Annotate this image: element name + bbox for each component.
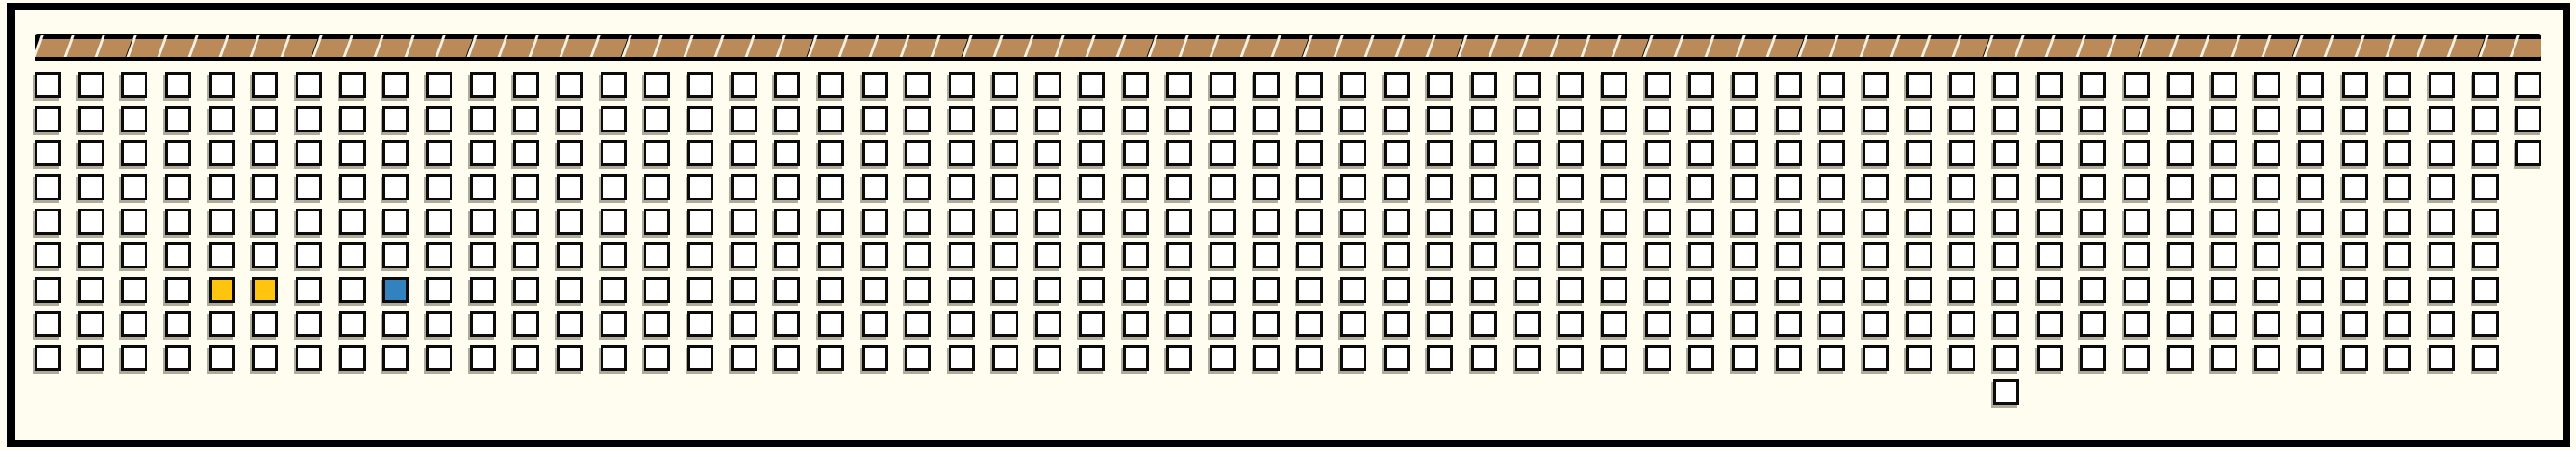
grid-cell: [818, 140, 844, 166]
agent-cell-blue: [382, 277, 409, 303]
grid-cell: [513, 209, 539, 235]
grid-cell: [949, 277, 975, 303]
grid-cell: [818, 277, 844, 303]
grid-cell: [2080, 174, 2106, 200]
grid-cell: [35, 106, 61, 132]
grid-cell: [1166, 174, 1192, 200]
grid-cell: [2167, 209, 2194, 235]
grid-cell: [2515, 106, 2541, 132]
grid-cell: [1688, 277, 1714, 303]
grid-cell: [601, 140, 627, 166]
grid-cell: [1906, 277, 1932, 303]
grid-cell: [687, 311, 713, 337]
grid-cell: [2124, 311, 2150, 337]
grid-cell: [252, 242, 278, 268]
grid-cell: [121, 242, 147, 268]
grid-cell: [1993, 140, 2019, 166]
grid-cell: [1296, 311, 1323, 337]
grid-cell: [78, 174, 104, 200]
grid-cell: [513, 311, 539, 337]
grid-cell: [1732, 72, 1758, 98]
grid-cell: [1558, 277, 1584, 303]
grid-cell: [296, 72, 322, 98]
grid-cell: [35, 72, 61, 98]
grid-cell: [1427, 72, 1453, 98]
grid-cell: [2342, 209, 2368, 235]
grid-cell: [1558, 106, 1584, 132]
grid-cell: [1819, 106, 1845, 132]
grid-cell: [1776, 209, 1802, 235]
grid-cell: [2254, 345, 2280, 371]
grid-cell: [905, 174, 931, 200]
grid-cell: [165, 209, 191, 235]
grid-cell: [1035, 174, 1061, 200]
grid-cell: [252, 72, 278, 98]
grid-cell: [1515, 174, 1541, 200]
grid-cell: [1123, 140, 1149, 166]
grid-cell: [1384, 345, 1410, 371]
grid-cell: [1253, 106, 1280, 132]
grid-cell: [1601, 242, 1627, 268]
grid-cell: [1340, 106, 1366, 132]
grid-cell: [1993, 106, 2019, 132]
grid-cell: [2472, 242, 2499, 268]
grid-cell: [2429, 345, 2455, 371]
grid-cell: [2211, 277, 2237, 303]
grid-cell: [470, 140, 496, 166]
grid-cell: [252, 209, 278, 235]
grid-cell: [1819, 345, 1845, 371]
grid-cell: [557, 209, 583, 235]
grid-cell: [774, 106, 800, 132]
grid-cell: [905, 209, 931, 235]
grid-cell: [2342, 311, 2368, 337]
grid-cell: [1210, 311, 1236, 337]
grid-cell: [1296, 140, 1323, 166]
grid-cell: [1776, 140, 1802, 166]
grid-cell: [2342, 72, 2368, 98]
grid-cell: [2472, 174, 2499, 200]
grid-cell: [2472, 140, 2499, 166]
grid-cell: [557, 277, 583, 303]
grid-cell: [1645, 209, 1671, 235]
grid-cell: [1688, 140, 1714, 166]
grid-cell: [209, 72, 235, 98]
grid-cell: [1079, 140, 1105, 166]
grid-cell: [2515, 140, 2541, 166]
grid-cell: [2080, 311, 2106, 337]
grid-cell: [339, 174, 366, 200]
grid-cell: [949, 72, 975, 98]
grid-cell: [2080, 72, 2106, 98]
grid-cell: [1471, 106, 1497, 132]
grid-cell: [1906, 311, 1932, 337]
grid-cell: [2385, 209, 2411, 235]
grid-cell: [1776, 106, 1802, 132]
grid-cell: [296, 106, 322, 132]
grid-cell: [1471, 242, 1497, 268]
grid-cell: [1123, 72, 1149, 98]
grid-cell: [992, 277, 1018, 303]
grid-cell: [1993, 209, 2019, 235]
grid-cell: [426, 140, 452, 166]
grid-cell: [905, 106, 931, 132]
grid-cell: [687, 106, 713, 132]
grid-cell: [557, 311, 583, 337]
grid-cell: [1515, 72, 1541, 98]
grid-cell: [165, 72, 191, 98]
grid-cell: [1166, 345, 1192, 371]
grid-cell: [2124, 106, 2150, 132]
grid-cell: [644, 242, 670, 268]
grid-cell: [1601, 72, 1627, 98]
grid-cell: [1906, 242, 1932, 268]
grid-cell: [1993, 311, 2019, 337]
grid-cell: [35, 174, 61, 200]
grid-cell: [2124, 72, 2150, 98]
grid-cell: [862, 345, 888, 371]
grid-cell: [818, 311, 844, 337]
grid-cell: [687, 174, 713, 200]
grid-cell: [382, 311, 409, 337]
grid-cell: [382, 72, 409, 98]
grid-cell: [2211, 345, 2237, 371]
grid-cell: [1427, 277, 1453, 303]
grid-cell: [1993, 72, 2019, 98]
grid-cell: [644, 311, 670, 337]
grid-cell: [1863, 174, 1889, 200]
grid-cell: [1776, 242, 1802, 268]
grid-cell: [2254, 106, 2280, 132]
grid-cell: [513, 106, 539, 132]
grid-cell: [1166, 209, 1192, 235]
grid-cell: [1384, 174, 1410, 200]
grid-cell: [1079, 345, 1105, 371]
grid-cell: [774, 277, 800, 303]
grid-cell: [1732, 311, 1758, 337]
grid-cell: [35, 277, 61, 303]
grid-cell: [2298, 106, 2324, 132]
grid-cell: [949, 209, 975, 235]
grid-cell: [78, 277, 104, 303]
grid-cell: [2429, 72, 2455, 98]
grid-cell: [1253, 242, 1280, 268]
grid-cell: [296, 277, 322, 303]
grid-cell: [339, 209, 366, 235]
grid-cell: [78, 140, 104, 166]
grid-cell: [731, 209, 757, 235]
grid-cell: [1123, 311, 1149, 337]
grid-cell: [121, 311, 147, 337]
grid-cell: [862, 311, 888, 337]
grid-cell: [2211, 311, 2237, 337]
grid-cell: [1645, 345, 1671, 371]
grid-cell: [2472, 106, 2499, 132]
grid-cell: [1688, 242, 1714, 268]
grid-cell: [2037, 209, 2063, 235]
grid-cell: [2080, 140, 2106, 166]
grid-cell: [2124, 209, 2150, 235]
grid-cell: [905, 140, 931, 166]
grid-cell: [731, 106, 757, 132]
grid-cell: [2037, 311, 2063, 337]
grid-cell: [1863, 106, 1889, 132]
grid-cell: [644, 106, 670, 132]
grid-cell: [165, 106, 191, 132]
grid-cell: [2037, 140, 2063, 166]
grid-cell: [1645, 140, 1671, 166]
grid-cell: [339, 140, 366, 166]
grid-cell: [1949, 311, 1975, 337]
grid-cell: [470, 209, 496, 235]
grid-cell: [1384, 106, 1410, 132]
grid-cell: [513, 277, 539, 303]
grid-cell: [644, 345, 670, 371]
grid-cell: [1123, 345, 1149, 371]
grid-cell: [2254, 242, 2280, 268]
grid-cell: [1601, 311, 1627, 337]
grid-cell: [513, 72, 539, 98]
grid-cell: [1688, 106, 1714, 132]
grid-cell: [774, 311, 800, 337]
grid-cell: [121, 277, 147, 303]
grid-cell: [2211, 174, 2237, 200]
grid-cell: [1210, 174, 1236, 200]
grid-cell: [2342, 242, 2368, 268]
grid-cell: [731, 140, 757, 166]
grid-cell: [905, 242, 931, 268]
grid-cell: [1079, 174, 1105, 200]
grid-cell: [2167, 242, 2194, 268]
grid-cell: [1123, 174, 1149, 200]
grid-cell: [731, 242, 757, 268]
grid-cell: [949, 311, 975, 337]
grid-cell: [252, 311, 278, 337]
grid-cell: [35, 242, 61, 268]
grid-cell: [1949, 72, 1975, 98]
grid-cell: [687, 345, 713, 371]
grid-cell: [1471, 209, 1497, 235]
grid-cell: [382, 209, 409, 235]
grid-cell: [1427, 345, 1453, 371]
grid-cell: [1079, 242, 1105, 268]
grid-cell: [1515, 209, 1541, 235]
grid-cell: [339, 72, 366, 98]
grid-cell: [1645, 106, 1671, 132]
grid-cell: [296, 140, 322, 166]
grid-cell: [1340, 174, 1366, 200]
grid-cell: [992, 311, 1018, 337]
grid-cell: [1079, 277, 1105, 303]
grid-cell: [296, 311, 322, 337]
grid-cell: [774, 174, 800, 200]
grid-cell: [1166, 140, 1192, 166]
grid-cell: [426, 311, 452, 337]
grid-cell: [165, 242, 191, 268]
grid-cell: [731, 277, 757, 303]
grid-cell: [818, 345, 844, 371]
grid-cell: [1340, 345, 1366, 371]
grid-cell: [1863, 277, 1889, 303]
grid-cell: [1296, 174, 1323, 200]
grid-cell: [1166, 106, 1192, 132]
grid-cell: [1340, 72, 1366, 98]
grid-cell: [2472, 209, 2499, 235]
grid-cell: [601, 72, 627, 98]
conveyor-belt: [35, 34, 2541, 61]
grid-cell: [1296, 345, 1323, 371]
grid-cell: [1210, 106, 1236, 132]
grid-cell: [2167, 106, 2194, 132]
grid-cell: [2385, 277, 2411, 303]
grid-cell: [1993, 242, 2019, 268]
grid-cell: [209, 140, 235, 166]
grid-cell: [339, 242, 366, 268]
grid-cell: [2254, 140, 2280, 166]
grid-cell: [2124, 277, 2150, 303]
grid-cell: [1253, 277, 1280, 303]
grid-cell: [1123, 106, 1149, 132]
grid-cell: [78, 345, 104, 371]
grid-cell: [470, 174, 496, 200]
grid-cell: [209, 106, 235, 132]
grid-cell: [121, 140, 147, 166]
grid-cell: [296, 242, 322, 268]
grid-cell: [2385, 72, 2411, 98]
grid-cell: [1993, 345, 2019, 371]
grid-cell: [949, 106, 975, 132]
grid-cell: [1863, 140, 1889, 166]
grid-cell: [1079, 209, 1105, 235]
grid-cell: [1949, 209, 1975, 235]
grid-cell: [1732, 242, 1758, 268]
grid-cell: [165, 345, 191, 371]
agent-cell-yellow-1: [209, 277, 235, 303]
grid-cell: [1558, 72, 1584, 98]
grid-cell: [2037, 106, 2063, 132]
grid-cell: [1296, 72, 1323, 98]
grid-cell: [78, 311, 104, 337]
belt-segment: [2509, 39, 2541, 57]
grid-cell: [1253, 140, 1280, 166]
grid-cell: [1819, 277, 1845, 303]
grid-cell: [165, 140, 191, 166]
grid-cell: [1601, 277, 1627, 303]
grid-cell: [1471, 140, 1497, 166]
grid-cell: [774, 140, 800, 166]
grid-cell: [1993, 174, 2019, 200]
grid-cell: [2385, 311, 2411, 337]
grid-cell: [470, 72, 496, 98]
grid-cell: [426, 106, 452, 132]
grid-cell: [339, 277, 366, 303]
grid-cell: [339, 345, 366, 371]
grid-cell: [209, 242, 235, 268]
grid-cell: [1601, 140, 1627, 166]
grid-cell: [862, 174, 888, 200]
grid-cell: [382, 174, 409, 200]
grid-cell: [252, 174, 278, 200]
grid-cell: [2080, 106, 2106, 132]
grid-cell: [731, 72, 757, 98]
grid-cell: [1515, 106, 1541, 132]
grid-cell: [470, 106, 496, 132]
grid-cell: [687, 72, 713, 98]
grid-cell: [992, 106, 1018, 132]
grid-cell: [121, 345, 147, 371]
grid-cell: [644, 209, 670, 235]
grid-cell: [557, 345, 583, 371]
grid-cell: [1863, 311, 1889, 337]
grid-cell: [2298, 140, 2324, 166]
grid-cell: [252, 345, 278, 371]
grid-cell: [2429, 209, 2455, 235]
grid-cell: [1427, 174, 1453, 200]
grid-cell: [1645, 174, 1671, 200]
grid-cell: [165, 277, 191, 303]
grid-cell: [78, 209, 104, 235]
grid-cell: [1819, 209, 1845, 235]
grid-cell: [1558, 345, 1584, 371]
grid-cell: [557, 106, 583, 132]
grid-cell: [2342, 106, 2368, 132]
grid-cell: [209, 345, 235, 371]
grid-cell: [2515, 72, 2541, 98]
grid-cell: [1515, 277, 1541, 303]
grid-cell: [687, 277, 713, 303]
grid-cell: [2254, 277, 2280, 303]
grid-cell: [774, 345, 800, 371]
grid-cell: [513, 174, 539, 200]
grid-cell: [382, 345, 409, 371]
grid-cell: [2211, 242, 2237, 268]
grid-cell: [470, 345, 496, 371]
grid-cell: [1123, 209, 1149, 235]
grid-cell: [165, 174, 191, 200]
grid-cell: [1340, 242, 1366, 268]
grid-cell: [2342, 174, 2368, 200]
grid-cell: [687, 140, 713, 166]
grid-cell: [2298, 345, 2324, 371]
grid-cell: [1296, 209, 1323, 235]
grid-cell: [1688, 311, 1714, 337]
grid-cell: [1253, 209, 1280, 235]
grid-cell: [644, 277, 670, 303]
grid-cell: [1166, 242, 1192, 268]
grid-cell: [1732, 174, 1758, 200]
grid-cell: [1210, 242, 1236, 268]
grid-cell: [1906, 209, 1932, 235]
grid-cell: [209, 174, 235, 200]
grid-cell: [382, 106, 409, 132]
grid-cell: [296, 209, 322, 235]
grid-cell: [1732, 345, 1758, 371]
grid-cell: [121, 174, 147, 200]
grid-cell: [1210, 72, 1236, 98]
grid-cell: [470, 242, 496, 268]
grid-cell: [1993, 379, 2019, 405]
grid-cell: [862, 277, 888, 303]
grid-cell: [2124, 242, 2150, 268]
grid-cell: [2167, 311, 2194, 337]
grid-cell: [296, 345, 322, 371]
grid-cell: [1819, 311, 1845, 337]
grid-cell: [1949, 174, 1975, 200]
grid-cell: [1515, 140, 1541, 166]
grid-cell: [426, 209, 452, 235]
grid-cell: [2429, 242, 2455, 268]
grid-cell: [1210, 277, 1236, 303]
